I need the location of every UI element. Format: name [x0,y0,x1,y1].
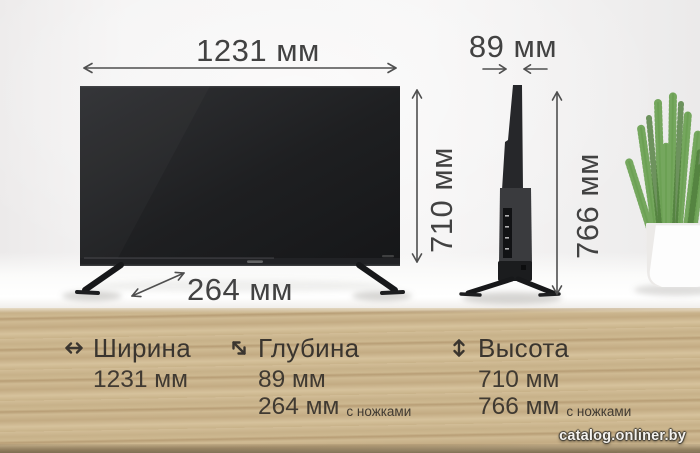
spec-depth-value-stand: 264 мм с ножками [258,393,411,425]
watermark: catalog.onliner.by [559,428,686,444]
brand-logo [247,260,263,263]
spec-height-note: с ножками [566,398,631,425]
diagonal-arrow-icon [229,338,249,358]
plant-foliage [629,94,700,234]
spec-height-value-panel: 710 мм [478,366,631,393]
spec-width: Ширина 1231 мм [64,334,191,393]
tv-front-view [77,86,403,293]
spec-height-value-stand: 766 мм с ножками [478,393,631,425]
spec-width-value: 1231 мм [93,366,191,393]
tv-stand-neck [498,261,532,281]
spec-width-label: Ширина [93,333,191,364]
spec-depth: Глубина 89 мм 264 мм с ножками [229,334,411,425]
total-height-dimension-arrow [553,92,562,294]
spec-height-label: Высота [478,333,569,364]
width-dimension-label: 1231 мм [178,33,338,69]
panel-depth-dimension-label: 89 мм [453,29,573,65]
left-right-arrow-icon [64,338,84,358]
spec-depth-label: Глубина [258,333,359,364]
potted-plant [629,94,700,287]
tv-side-view [461,85,559,295]
spec-depth-note: с ножками [346,398,411,425]
up-down-arrow-icon [449,338,469,358]
spec-height: Высота 710 мм 766 мм с ножками [449,334,631,425]
tv-dimensions-product-image: 1231 мм 89 мм 710 мм 766 мм 264 мм Ширин… [0,0,700,453]
panel-height-dimension-arrow [413,90,422,262]
tv-side-legs [468,279,553,293]
stand-depth-dimension-label: 264 мм [180,272,300,308]
panel-height-dimension-label: 710 мм [424,130,460,270]
total-height-dimension-label: 766 мм [570,136,606,276]
depth-dimension-arrows [483,65,547,73]
screen-corner-badge [382,255,394,257]
spec-depth-value-panel: 89 мм [258,366,411,393]
